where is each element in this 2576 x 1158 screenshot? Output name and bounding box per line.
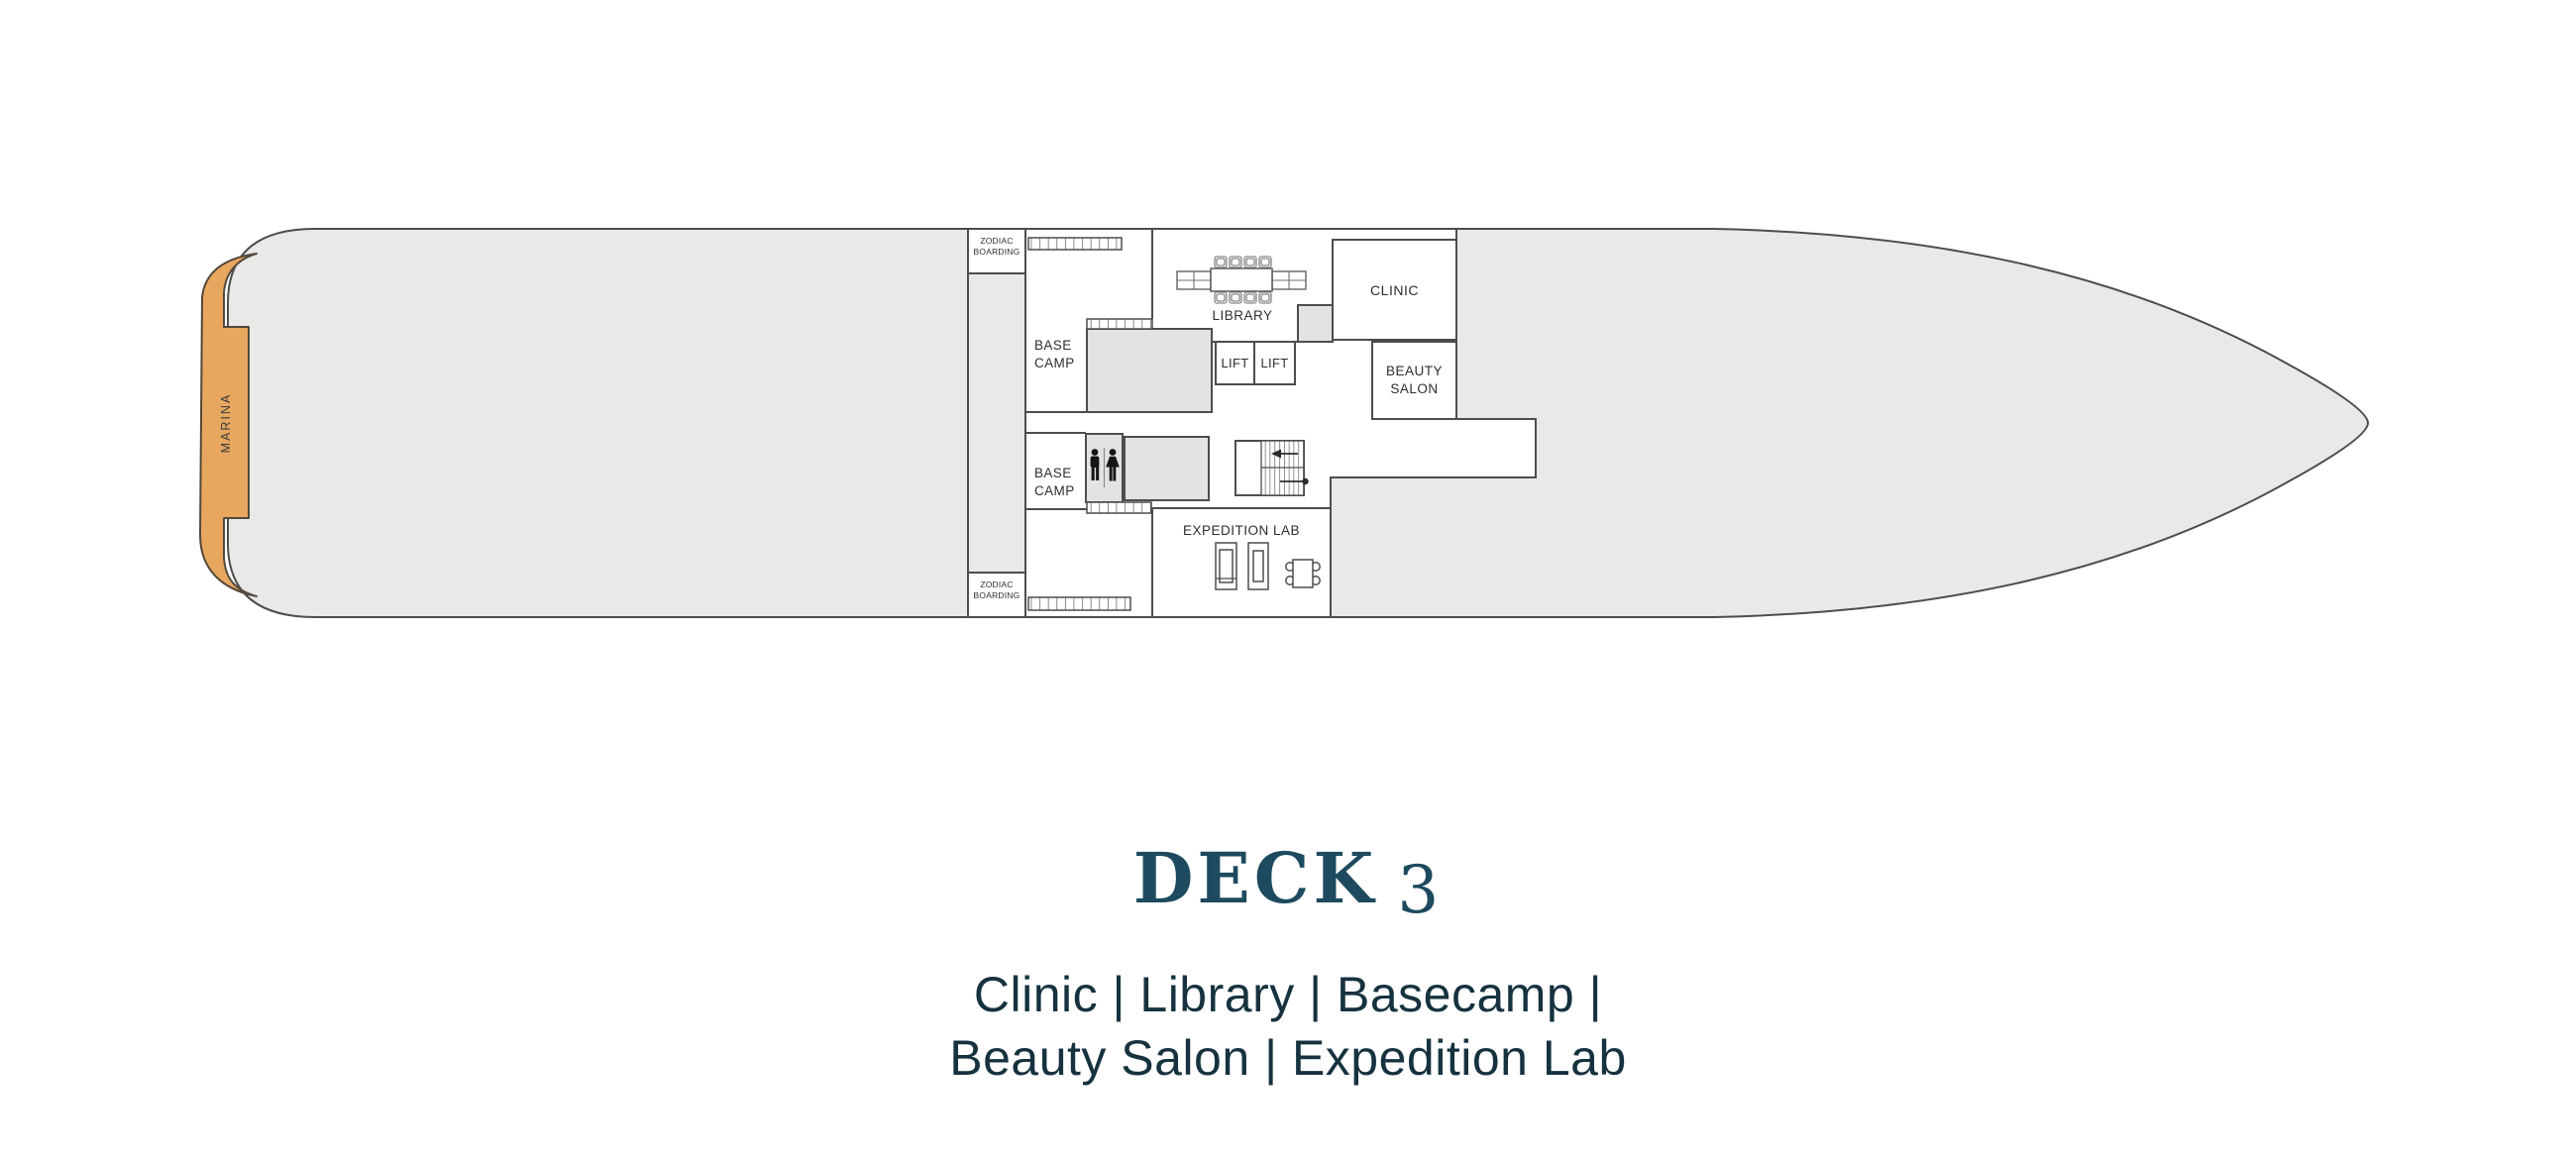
lift-1-label: LIFT — [1216, 356, 1254, 370]
clinic-label: CLINIC — [1333, 282, 1456, 298]
basecamp-lower-block — [1125, 437, 1209, 500]
locker-strip-upper-block — [1087, 319, 1152, 329]
deck-subtitle-line-1: Clinic | Library | Basecamp | — [0, 963, 2576, 1026]
deck-subtitle-line-2: Beauty Salon | Expedition Lab — [0, 1026, 2576, 1090]
deck-title-word: DECK — [1133, 837, 1378, 919]
deck-title: DECK3 — [0, 837, 2576, 919]
marina-label: MARINA — [219, 373, 233, 473]
locker-strip-bottom — [1028, 597, 1130, 610]
staircase — [1235, 441, 1309, 495]
title-block: DECK3 — [0, 837, 2576, 919]
deck-plan-page: MARINA ZODIAC BOARDING ZODIAC BOARDING B… — [0, 0, 2576, 1158]
deck-title-number: 3 — [1397, 852, 1443, 928]
library-table — [1211, 268, 1272, 291]
zodiac-corridor — [968, 229, 1025, 617]
stair-arrow-dot — [1302, 478, 1308, 484]
base-camp-upper-label: BASE CAMP — [1034, 337, 1075, 371]
lift-2-label: LIFT — [1254, 356, 1295, 370]
lab-table — [1293, 560, 1313, 587]
service-block-small — [1298, 305, 1333, 342]
locker-strip-lower-block — [1087, 502, 1151, 513]
deck-subtitle: Clinic | Library | Basecamp | Beauty Sal… — [0, 963, 2576, 1090]
expedition-lab-label: EXPEDITION LAB — [1152, 523, 1331, 538]
zodiac-boarding-bottom-label: ZODIAC BOARDING — [968, 579, 1025, 600]
beauty-salon-label: BEAUTY SALON — [1372, 363, 1456, 397]
base-camp-lower-label: BASE CAMP — [1034, 465, 1075, 499]
zodiac-boarding-top-label: ZODIAC BOARDING — [968, 236, 1025, 257]
library-label: LIBRARY — [1183, 308, 1302, 323]
basecamp-upper-block — [1087, 329, 1212, 412]
locker-strip-top — [1028, 238, 1122, 250]
